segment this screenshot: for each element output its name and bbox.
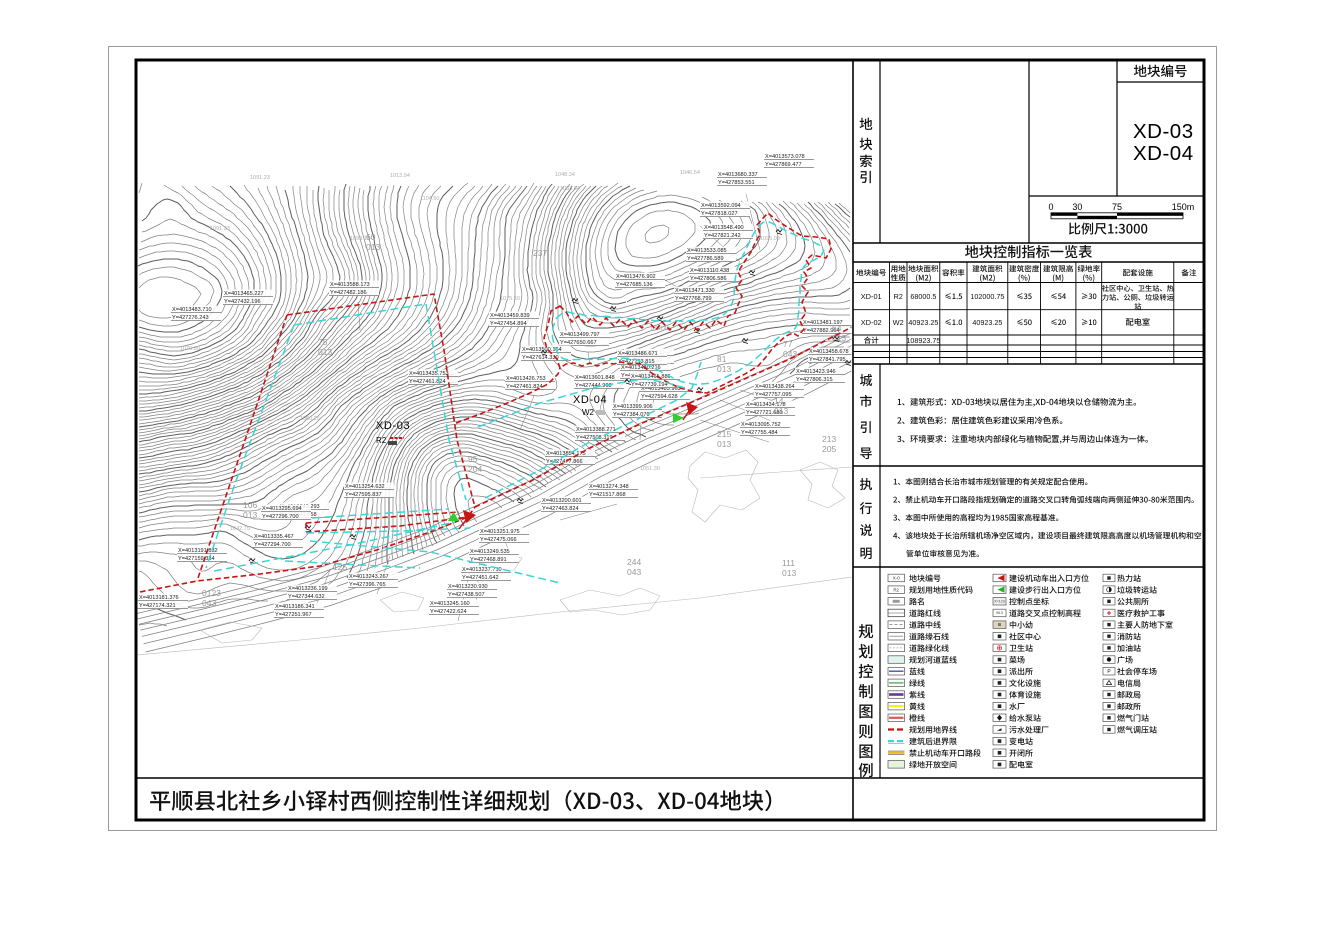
svg-text:Y=427475.066: Y=427475.066 <box>480 537 517 543</box>
svg-text:XD-03: XD-03 <box>1133 120 1194 143</box>
svg-text:Y=427869.477: Y=427869.477 <box>765 162 802 168</box>
svg-text:X=4013459.839: X=4013459.839 <box>490 313 530 319</box>
svg-text:X=4013465.227: X=4013465.227 <box>224 291 264 297</box>
svg-text:1095.00: 1095.00 <box>760 236 780 242</box>
svg-text:X=4013435.753: X=4013435.753 <box>409 371 449 377</box>
svg-text:Y=427276.243: Y=427276.243 <box>172 315 209 321</box>
svg-text:X=4013245.160: X=4013245.160 <box>430 601 470 607</box>
svg-text:X=4013438.264: X=4013438.264 <box>755 384 795 390</box>
svg-text:X=4013399.906: X=4013399.906 <box>613 404 653 410</box>
svg-text:X=4013458.678: X=4013458.678 <box>809 349 849 355</box>
svg-text:X=4013251.975: X=4013251.975 <box>480 529 520 535</box>
svg-text:108923.75: 108923.75 <box>906 336 940 345</box>
svg-text:237: 237 <box>533 248 547 258</box>
svg-text:75: 75 <box>1112 202 1122 212</box>
svg-text:X=4013295.694: X=4013295.694 <box>262 506 302 512</box>
svg-text:Y=427853.551: Y=427853.551 <box>718 180 755 186</box>
svg-text:Y=427594.628: Y=427594.628 <box>641 394 678 400</box>
svg-text:013: 013 <box>782 568 796 578</box>
svg-text:X=4013249.535: X=4013249.535 <box>470 549 510 555</box>
svg-text:X=4013274.348: X=4013274.348 <box>589 484 629 490</box>
svg-text:Y=427685.136: Y=427685.136 <box>616 282 653 288</box>
svg-text:1083.64: 1083.64 <box>560 186 580 192</box>
svg-text:Y=427841.795: Y=427841.795 <box>809 357 846 363</box>
svg-text:205: 205 <box>822 444 836 454</box>
svg-text:Y=427432.196: Y=427432.196 <box>224 299 261 305</box>
svg-text:X=4013483.710: X=4013483.710 <box>172 307 212 313</box>
svg-text:X-0: X-0 <box>893 576 901 581</box>
svg-text:R2: R2 <box>893 587 899 592</box>
svg-text:Y=427422.624: Y=427422.624 <box>430 609 467 615</box>
svg-text:013: 013 <box>717 364 731 374</box>
svg-text:X=4013186.341: X=4013186.341 <box>275 604 315 610</box>
svg-text:X=4013486.671: X=4013486.671 <box>618 351 658 357</box>
svg-text:111: 111 <box>782 558 795 568</box>
svg-text:X=4013465.886: X=4013465.886 <box>631 374 671 380</box>
svg-text:Y=427463.824: Y=427463.824 <box>542 506 579 512</box>
svg-text:Y=427461.824: Y=427461.824 <box>409 379 446 385</box>
svg-text:XD-02: XD-02 <box>861 318 882 327</box>
svg-text:Y=427482.186: Y=427482.186 <box>330 290 367 296</box>
svg-text:64: 64 <box>832 323 842 333</box>
svg-text:1091.23: 1091.23 <box>210 226 230 232</box>
svg-text:X=4013110.438: X=4013110.438 <box>690 268 729 274</box>
svg-text:W2: W2 <box>582 408 595 417</box>
svg-text:77: 77 <box>783 339 793 349</box>
svg-text:0: 0 <box>1048 202 1053 212</box>
svg-text:013: 013 <box>366 242 380 252</box>
svg-text:XD-01: XD-01 <box>861 292 882 301</box>
svg-text:Y=427251.967: Y=427251.967 <box>275 612 312 618</box>
svg-text:X=4013426.753: X=4013426.753 <box>506 376 546 382</box>
svg-text:40923.25: 40923.25 <box>972 318 1002 327</box>
svg-text:Y=427595.837: Y=427595.837 <box>345 492 382 498</box>
svg-text:30: 30 <box>1072 202 1082 212</box>
svg-text:X=4013095.752: X=4013095.752 <box>741 422 781 428</box>
svg-text:X=4013601.848: X=4013601.848 <box>575 375 615 381</box>
svg-text:043: 043 <box>202 598 216 608</box>
svg-text:013: 013 <box>318 347 332 357</box>
svg-text:013: 013 <box>243 510 257 520</box>
svg-text:Y=427384.070: Y=427384.070 <box>613 412 650 418</box>
svg-text:Y=427739.194: Y=427739.194 <box>631 382 668 388</box>
svg-text:013: 013 <box>717 439 731 449</box>
svg-text:Y=427806.315: Y=427806.315 <box>796 377 833 383</box>
svg-text:R2: R2 <box>376 436 387 445</box>
svg-text:X=4013476.902: X=4013476.902 <box>616 274 656 280</box>
svg-text:Y=427438.507: Y=427438.507 <box>448 592 485 598</box>
svg-text:Y=427174.321: Y=427174.321 <box>139 603 176 609</box>
svg-text:215: 215 <box>717 429 731 439</box>
svg-text:X=4013200.601: X=4013200.601 <box>542 498 582 504</box>
svg-text:1046.54: 1046.54 <box>680 170 700 176</box>
svg-text:Y=427755.484: Y=427755.484 <box>741 430 778 436</box>
svg-text:Y=427818.027: Y=427818.027 <box>701 211 738 217</box>
svg-text:XD-04: XD-04 <box>573 394 607 406</box>
svg-text:1091.23: 1091.23 <box>250 175 270 181</box>
svg-text:Y=427468.891: Y=427468.891 <box>470 557 507 563</box>
svg-text:X=4013680.337: X=4013680.337 <box>718 172 758 178</box>
svg-text:X=4013499.797: X=4013499.797 <box>560 332 600 338</box>
svg-text:1048.34: 1048.34 <box>555 172 575 178</box>
svg-text:X=4013230.930: X=4013230.930 <box>448 584 488 590</box>
svg-text:Y=427821.242: Y=427821.242 <box>704 233 741 239</box>
svg-text:78: 78 <box>318 337 328 347</box>
svg-text:X=4013423.946: X=4013423.946 <box>796 369 836 375</box>
svg-text:Y=427454.894: Y=427454.894 <box>490 321 527 327</box>
svg-text:Y=427451.642: Y=427451.642 <box>462 575 499 581</box>
svg-text:R2: R2 <box>893 292 902 301</box>
svg-text:Y=427806.586: Y=427806.586 <box>690 276 727 282</box>
svg-text:043: 043 <box>627 567 641 577</box>
svg-text:1075.50: 1075.50 <box>500 296 520 302</box>
svg-text:213: 213 <box>822 434 836 444</box>
svg-text:1070.00: 1070.00 <box>180 346 200 352</box>
svg-text:X=4013430.216: X=4013430.216 <box>621 365 661 371</box>
svg-text:150m: 150m <box>1172 202 1195 212</box>
svg-text:X=4013471.330: X=4013471.330 <box>675 288 715 294</box>
svg-text:68000.5: 68000.5 <box>910 292 936 301</box>
svg-text:Y=427296.700: Y=427296.700 <box>262 514 299 520</box>
svg-text:X=4013573.078: X=4013573.078 <box>765 154 805 160</box>
svg-text:106: 106 <box>243 500 257 510</box>
svg-text:X=4013548.490: X=4013548.490 <box>704 225 744 231</box>
svg-text:X=4013335.467: X=4013335.467 <box>254 534 294 540</box>
svg-text:043: 043 <box>783 349 797 359</box>
svg-text:1013.94: 1013.94 <box>390 173 410 179</box>
svg-text:XD-04: XD-04 <box>1133 142 1194 165</box>
svg-text:X=4013254.632: X=4013254.632 <box>345 484 385 490</box>
svg-text:Y=427786.589: Y=427786.589 <box>687 256 724 262</box>
svg-text:0123: 0123 <box>202 588 221 598</box>
svg-text:14: 14 <box>774 396 784 406</box>
svg-text:96.5: 96.5 <box>996 611 1003 615</box>
svg-text:95: 95 <box>468 454 478 464</box>
svg-text:X=4013236.199: X=4013236.199 <box>288 586 328 592</box>
svg-text:Y=427344.632: Y=427344.632 <box>288 594 325 600</box>
svg-text:40923.25: 40923.25 <box>908 318 938 327</box>
svg-text:Y=421517.868: Y=421517.868 <box>589 492 626 498</box>
svg-text:244: 244 <box>627 557 641 567</box>
svg-text:81: 81 <box>717 354 727 364</box>
svg-text:X=4013181.376: X=4013181.376 <box>139 595 179 601</box>
svg-text:Y=427768.799: Y=427768.799 <box>675 296 712 302</box>
svg-text:Y=427396.765: Y=427396.765 <box>349 582 386 588</box>
svg-text:W2: W2 <box>893 318 904 327</box>
svg-text:60: 60 <box>366 232 376 242</box>
svg-text:1060.25: 1060.25 <box>300 416 320 422</box>
svg-text:X=4013243.267: X=4013243.267 <box>349 574 389 580</box>
svg-text:Y=427444.908: Y=427444.908 <box>575 383 612 389</box>
svg-text:XD-03: XD-03 <box>376 420 410 432</box>
svg-text:Y=427294.700: Y=427294.700 <box>254 542 291 548</box>
svg-text:1042.75: 1042.75 <box>230 526 250 532</box>
svg-text:1104.50: 1104.50 <box>420 196 439 202</box>
svg-text:204: 204 <box>468 464 482 474</box>
svg-text:X=4013191.832: X=4013191.832 <box>178 548 218 554</box>
svg-text:102000.75: 102000.75 <box>970 292 1004 301</box>
svg-text:X=4013533.085: X=4013533.085 <box>687 248 727 254</box>
svg-text:X=4013588.173: X=4013588.173 <box>330 282 370 288</box>
svg-text:Y=427614.330: Y=427614.330 <box>522 355 559 361</box>
svg-text:013: 013 <box>774 406 788 416</box>
svg-text:1051.30: 1051.30 <box>640 466 660 472</box>
svg-text:X=4013592.094: X=4013592.094 <box>701 203 741 209</box>
svg-text:Y=427650.667: Y=427650.667 <box>560 340 597 346</box>
svg-text:X=123: X=123 <box>994 600 1005 604</box>
